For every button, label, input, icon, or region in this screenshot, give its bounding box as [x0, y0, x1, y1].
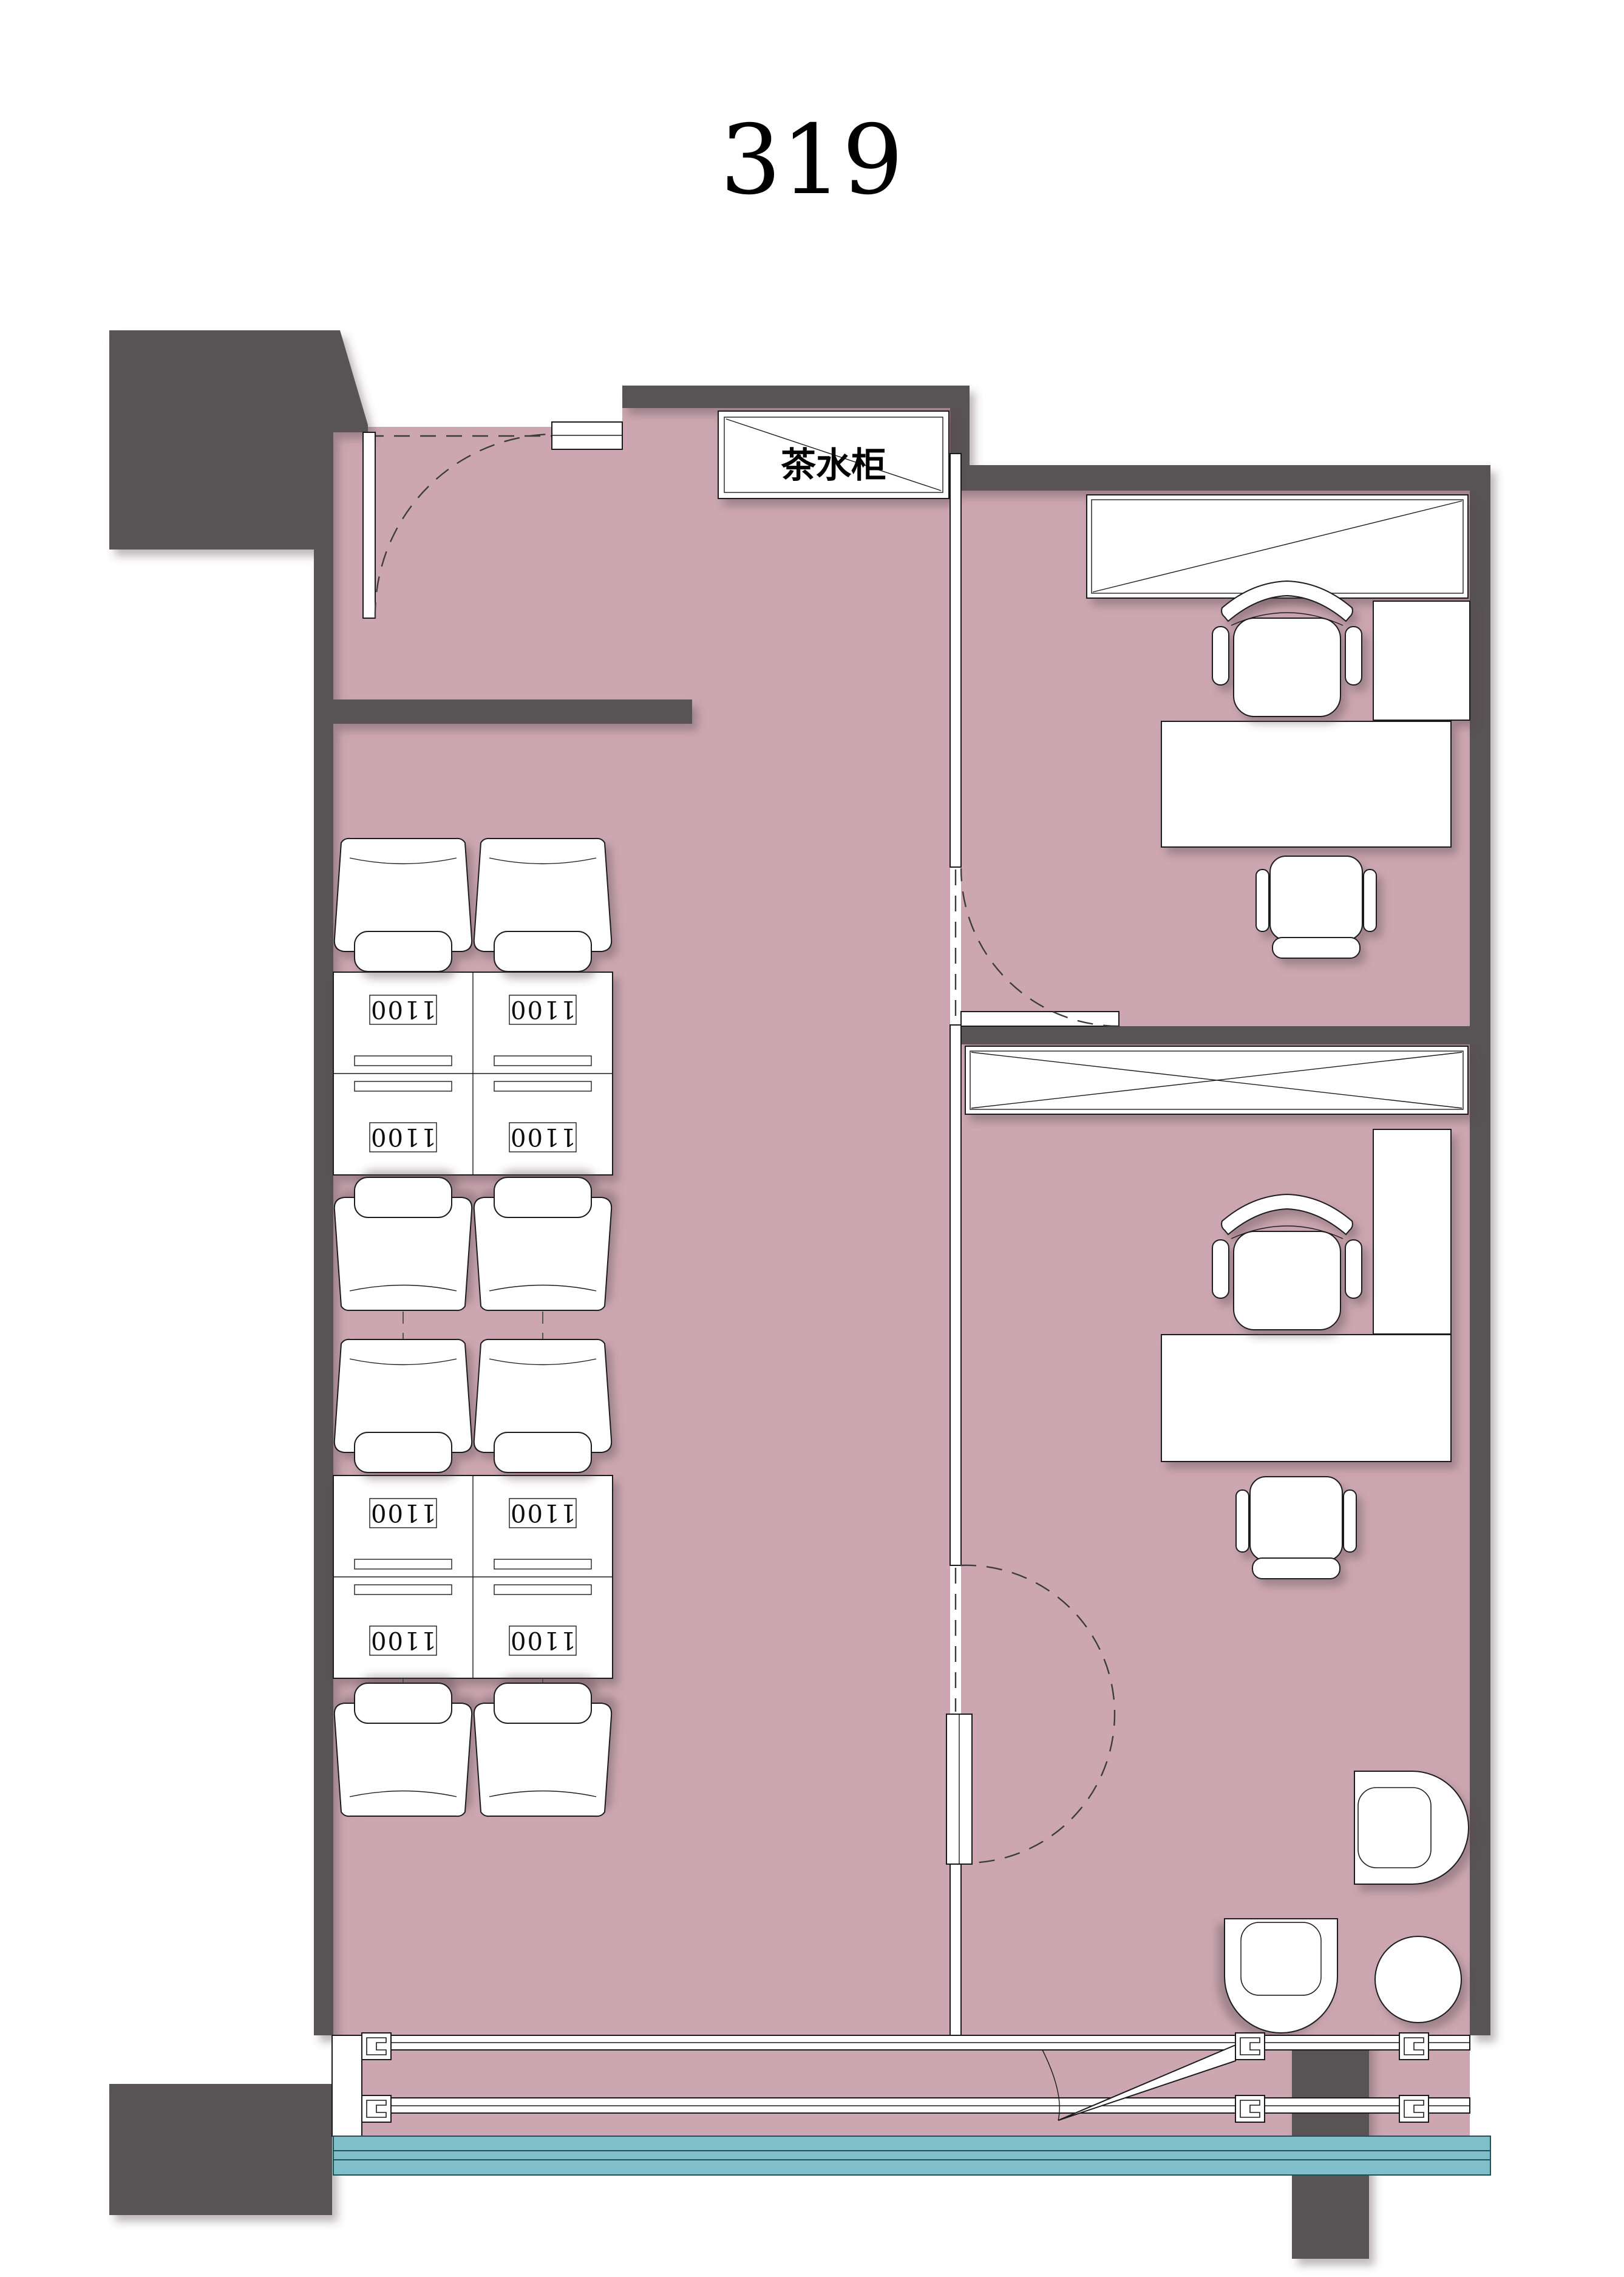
- wall-left: [314, 550, 333, 2035]
- desk-cluster-1: 1100 1100 1100 1100: [333, 972, 613, 1175]
- lounge-tub-chair-bottom: [1225, 1919, 1337, 2033]
- lounge-round-table: [1375, 1936, 1461, 2023]
- office1-desk: [1161, 721, 1451, 847]
- ws-chair-row2-right: [474, 1177, 611, 1310]
- ws-chair-row1-right: [474, 839, 611, 972]
- ws-chair-row3-left: [335, 1339, 472, 1472]
- wall-stub-left: [314, 699, 692, 724]
- tea-cabinet-label: 茶水柜: [781, 446, 886, 485]
- tea-cabinet: 茶水柜: [718, 411, 949, 499]
- partition-segment-middle: [950, 1025, 961, 1565]
- glazing-band: [333, 2136, 1490, 2175]
- desk2-size-label: 1100: [509, 995, 576, 1023]
- office2-guest-chair: [1236, 1477, 1356, 1579]
- partition-segment-top: [950, 454, 961, 867]
- wall-top-entry: [622, 386, 970, 408]
- ws-chair-row4-right: [474, 1683, 611, 1816]
- floor-plan-drawing: 319 茶水柜: [0, 0, 1624, 2277]
- mullion-upper-right: [1399, 2033, 1429, 2060]
- office1-guest-chair: [1256, 856, 1376, 958]
- mullion-lower-mid: [1235, 2095, 1265, 2122]
- floor-plan-page: 319 茶水柜: [0, 0, 1624, 2277]
- office2-side-cabinet: [1373, 1129, 1451, 1334]
- entry-door-leaf: [363, 432, 375, 618]
- desk1-size-label: 1100: [370, 995, 437, 1023]
- office2-desk: [1161, 1335, 1451, 1462]
- wall-entry-splay: [333, 330, 368, 432]
- office1-door-leaf: [961, 1012, 1119, 1026]
- lounge-tub-chair-right: [1354, 1771, 1469, 1884]
- lounge-tub-chair-bottom-shape: [1225, 1919, 1337, 2033]
- office1-side-cabinet: [1373, 601, 1470, 720]
- mullion-upper-left: [362, 2033, 391, 2060]
- desk6-size-label: 1100: [509, 1499, 576, 1527]
- wall-block-top-left: [109, 330, 333, 550]
- plan-title: 319: [720, 104, 903, 216]
- wall-right: [1470, 491, 1490, 2035]
- desk7-size-label: 1100: [370, 1626, 437, 1654]
- ws-chair-shape: [474, 1177, 611, 1310]
- mullion-upper-mid: [1235, 2033, 1265, 2060]
- desk3-size-label: 1100: [370, 1123, 437, 1151]
- desk8-size-label: 1100: [509, 1626, 576, 1654]
- office2-cabinet: [965, 1046, 1468, 1114]
- ws-chair-shape: [335, 1177, 472, 1310]
- ws-chair-row2-left: [335, 1177, 472, 1310]
- ws-chair-row4-left: [335, 1683, 472, 1816]
- window-left-return: [332, 2035, 362, 2136]
- ws-chair-shape: [335, 1683, 472, 1816]
- ws-chair-shape: [474, 1683, 611, 1816]
- wall-top-offices: [950, 465, 1490, 491]
- ws-chair-row1-left: [335, 839, 472, 972]
- ws-chair-row3-right: [474, 1339, 611, 1472]
- mullion-lower-left: [362, 2095, 391, 2122]
- desk5-size-label: 1100: [370, 1499, 437, 1527]
- wall-block-bottom-left: [109, 2084, 332, 2215]
- desk-cluster-2: 1100 1100 1100 1100: [333, 1475, 613, 1678]
- mullion-lower-right: [1399, 2095, 1429, 2122]
- wall-office-divider: [961, 1026, 1470, 1044]
- desk4-size-label: 1100: [509, 1123, 576, 1151]
